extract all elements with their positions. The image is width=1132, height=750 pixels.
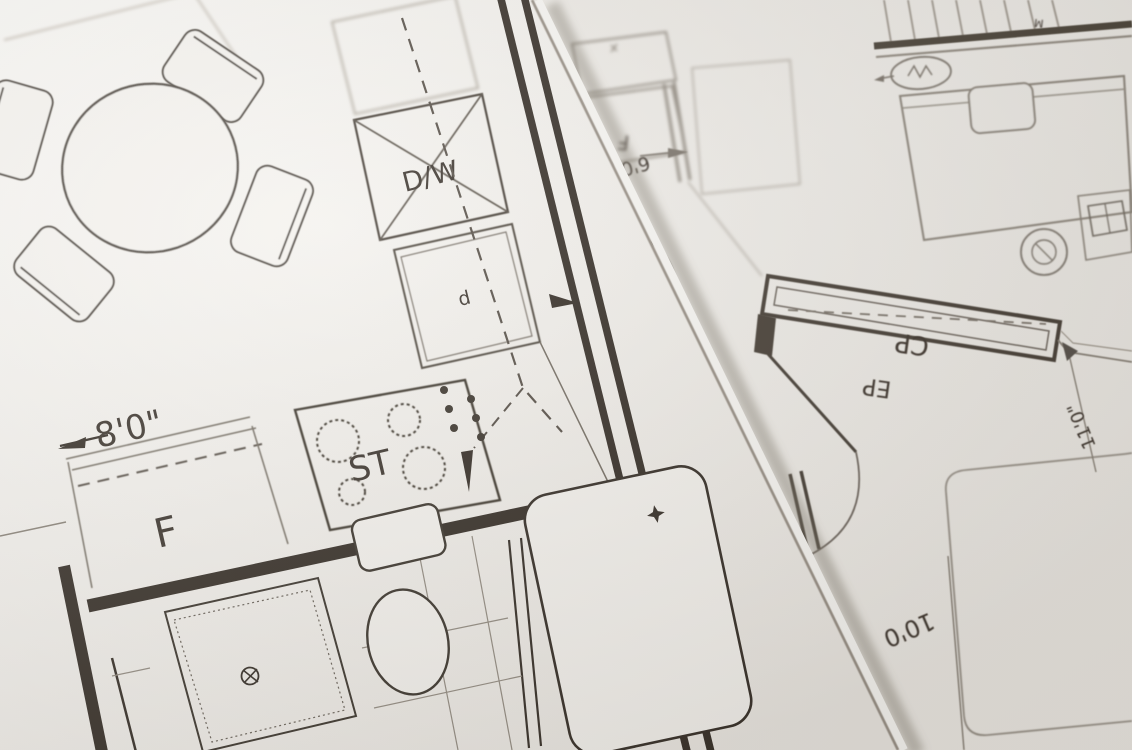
ep-label: EP — [861, 372, 893, 402]
marker-m-label: M — [1033, 16, 1044, 30]
closet-cp-label: CP — [893, 326, 931, 360]
blueprint-canvas: M — [0, 0, 1132, 750]
blueprint-photo: M — [0, 0, 1132, 750]
pillow — [968, 82, 1036, 133]
